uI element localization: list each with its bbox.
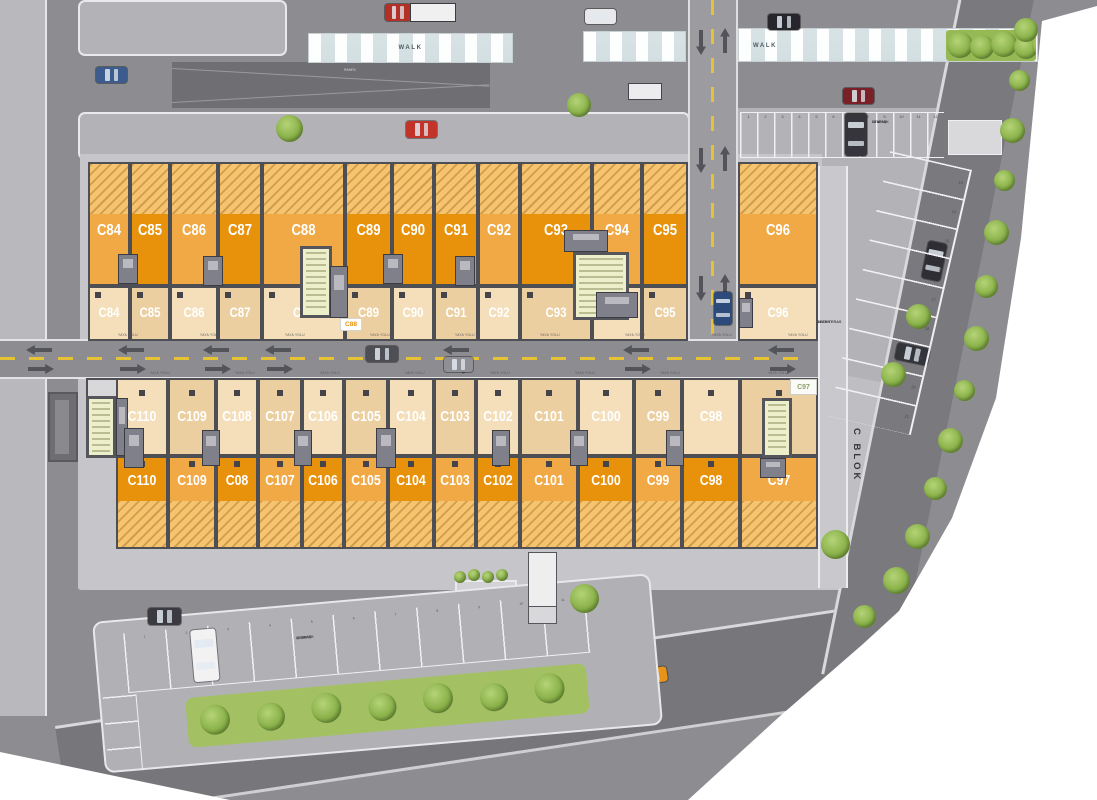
tree-icon bbox=[310, 692, 343, 725]
car-window bbox=[114, 69, 118, 81]
unit-label: C101 bbox=[527, 408, 571, 425]
car-window bbox=[194, 639, 214, 648]
bush-icon bbox=[454, 571, 466, 583]
car-window bbox=[105, 69, 110, 81]
unit-c95-lower[interactable]: C95 bbox=[642, 286, 688, 341]
car-icon bbox=[444, 357, 473, 372]
car-window bbox=[392, 6, 396, 19]
fixture-detail bbox=[460, 261, 471, 269]
stall-number: 5 bbox=[291, 618, 333, 626]
stall-number: 12 bbox=[927, 114, 944, 119]
unit-label: C90 bbox=[397, 304, 428, 320]
unit-c104-lower[interactable]: C104 bbox=[388, 456, 434, 549]
tree-icon bbox=[964, 326, 989, 351]
elevator-fixture bbox=[294, 430, 312, 466]
elevator-fixture bbox=[455, 256, 475, 286]
unit-backroom bbox=[347, 164, 390, 214]
elevator-fixture bbox=[666, 430, 684, 466]
pedestrian-path-label: YAYA YOLU bbox=[768, 371, 788, 375]
pedestrian-path-label: YAYA YOLU bbox=[625, 333, 645, 337]
unit-c108-upper[interactable]: C108 bbox=[216, 378, 258, 456]
fixture-detail bbox=[129, 435, 140, 446]
truck-icon bbox=[628, 83, 662, 100]
unit-backroom bbox=[684, 501, 738, 547]
unit-backroom bbox=[304, 501, 342, 547]
stall-number: 20 bbox=[901, 382, 916, 390]
car-icon bbox=[406, 121, 437, 138]
unit-label: C104 bbox=[394, 472, 428, 489]
unit-c109-lower[interactable]: C109 bbox=[168, 456, 216, 549]
elevator-fixture bbox=[383, 254, 403, 284]
unit-c106-lower[interactable]: C106 bbox=[302, 456, 344, 549]
stall-number: 1 bbox=[123, 633, 165, 641]
tree-icon bbox=[924, 477, 947, 500]
unit-backroom bbox=[220, 164, 260, 214]
pedestrian-path-label: YAYA YOLU bbox=[660, 371, 680, 375]
unit-label: C90 bbox=[397, 222, 428, 240]
tree-icon bbox=[984, 220, 1009, 245]
unit-backroom bbox=[436, 501, 474, 547]
pedestrian-path-label: YAYA YOLU bbox=[540, 333, 560, 337]
unit-label: C89 bbox=[351, 222, 386, 240]
tree-icon bbox=[1014, 18, 1038, 42]
unit-backroom bbox=[118, 501, 166, 547]
unit-c92[interactable]: C92 bbox=[478, 162, 520, 286]
corner-tag-c97: C97 bbox=[790, 379, 817, 395]
pedestrian-path-label: YAYA YOLU bbox=[200, 333, 220, 337]
unit-c87-lower[interactable]: C87 bbox=[218, 286, 262, 341]
unit-label: C99 bbox=[640, 408, 676, 425]
car-icon bbox=[845, 113, 867, 156]
fixture-detail bbox=[334, 275, 344, 290]
unit-backroom bbox=[436, 164, 476, 214]
elevator-fixture bbox=[376, 428, 396, 468]
unit-label: C92 bbox=[483, 304, 514, 320]
unit-label: C109 bbox=[174, 408, 210, 425]
pedestrian-path-label: YAYA YOLU bbox=[285, 333, 305, 337]
unit-backroom bbox=[522, 164, 590, 214]
car-window bbox=[415, 123, 420, 136]
unit-label: C100 bbox=[585, 472, 628, 489]
bush-icon bbox=[496, 569, 508, 581]
car-window bbox=[424, 123, 428, 136]
stall-number: 8 bbox=[416, 607, 458, 615]
unit-label: C105 bbox=[350, 408, 383, 425]
unit-backroom bbox=[478, 501, 518, 547]
unit-label: C92 bbox=[483, 222, 514, 240]
unit-backroom bbox=[580, 501, 632, 547]
elevator-fixture bbox=[492, 430, 510, 466]
stall-number: 1 bbox=[740, 114, 757, 119]
unit-backroom bbox=[394, 164, 432, 214]
unit-label: C102 bbox=[482, 472, 515, 489]
block-label: C BLOK bbox=[851, 428, 862, 482]
tree-icon bbox=[422, 682, 455, 715]
fixture-detail bbox=[206, 436, 216, 446]
unit-label: C110 bbox=[122, 472, 161, 489]
bush-icon bbox=[482, 571, 494, 583]
stairs bbox=[768, 404, 786, 452]
car-icon bbox=[96, 67, 127, 83]
stall-number: 9 bbox=[876, 114, 893, 119]
parking-pad bbox=[948, 120, 1002, 155]
walk-label: WALK bbox=[398, 45, 422, 51]
car-window bbox=[385, 348, 389, 360]
car-icon bbox=[843, 88, 874, 104]
car-window bbox=[787, 16, 791, 28]
sidewalk-island bbox=[78, 112, 690, 160]
unit-label: C85 bbox=[135, 222, 165, 240]
parking-stalls bbox=[103, 694, 143, 773]
car-window bbox=[848, 122, 865, 128]
car-window bbox=[603, 11, 607, 22]
elevator-fixture bbox=[203, 256, 223, 286]
road-center-line bbox=[0, 357, 812, 360]
fixture-detail bbox=[119, 407, 125, 424]
unit-backroom bbox=[740, 164, 816, 214]
tree-icon bbox=[256, 702, 286, 732]
unit-c08-lower[interactable]: C08 bbox=[216, 456, 258, 549]
truck-cab-icon bbox=[528, 606, 557, 624]
car-window bbox=[716, 299, 730, 304]
fixture-detail bbox=[766, 462, 780, 467]
stall-number: 13 bbox=[949, 177, 964, 185]
fixture-detail bbox=[298, 436, 308, 446]
car-icon bbox=[585, 9, 616, 24]
unit-backroom bbox=[260, 501, 300, 547]
ramp bbox=[172, 62, 490, 108]
unit-label: C85 bbox=[135, 304, 165, 320]
elevator-fixture bbox=[596, 292, 638, 318]
unit-backroom bbox=[218, 501, 256, 547]
fixture-detail bbox=[123, 259, 134, 267]
fixture-detail bbox=[742, 303, 749, 311]
unit-backroom bbox=[132, 164, 168, 214]
car-window bbox=[848, 141, 865, 146]
unit-label: C88 bbox=[271, 222, 336, 240]
stall-number: 5 bbox=[808, 114, 825, 119]
car-icon bbox=[148, 608, 181, 625]
unit-backroom bbox=[594, 164, 640, 214]
tree-icon bbox=[883, 567, 910, 594]
unit-c101-lower[interactable]: C101 bbox=[520, 456, 578, 549]
unit-label: C102 bbox=[482, 408, 515, 425]
sidewalk-island bbox=[78, 0, 287, 56]
car-window bbox=[777, 16, 782, 28]
stall-number: 17 bbox=[922, 294, 937, 302]
car-window bbox=[594, 11, 599, 22]
unit-backroom bbox=[480, 164, 518, 214]
van-icon bbox=[366, 346, 398, 362]
pedestrian-path-label: YAYA YOLU bbox=[405, 371, 425, 375]
tree-icon bbox=[938, 428, 963, 453]
tree-icon bbox=[533, 672, 566, 705]
elevator-fixture bbox=[570, 430, 588, 466]
stair-core bbox=[86, 396, 116, 458]
tree-icon bbox=[954, 380, 975, 401]
stall-number: 11 bbox=[910, 114, 927, 119]
unit-label: C103 bbox=[439, 408, 470, 425]
tree-icon bbox=[991, 31, 1017, 57]
unit-label: C104 bbox=[394, 408, 428, 425]
pedestrian-path-label: YAYA YOLU bbox=[455, 333, 475, 337]
stall-number: 7 bbox=[374, 611, 416, 619]
unit-c110-lower[interactable]: C110 bbox=[116, 456, 168, 549]
stall-number: 14 bbox=[942, 206, 957, 214]
stall-number: 4 bbox=[249, 622, 291, 630]
glass-walkway: WALK bbox=[308, 33, 513, 63]
unit-backroom bbox=[90, 164, 128, 214]
truck-trailer-icon bbox=[410, 3, 456, 22]
car-window bbox=[452, 359, 457, 370]
fixture-detail bbox=[573, 234, 598, 240]
unit-label: C101 bbox=[527, 472, 571, 489]
unit-c90-lower[interactable]: C90 bbox=[392, 286, 434, 341]
core-tag-c88: C88 bbox=[340, 318, 362, 331]
unit-c105-lower[interactable]: C105 bbox=[344, 456, 388, 549]
unit-label: C98 bbox=[689, 408, 733, 425]
unit-backroom bbox=[742, 501, 816, 547]
unit-label: C109 bbox=[174, 472, 210, 489]
car-window bbox=[852, 90, 857, 102]
tree-icon bbox=[1000, 118, 1025, 143]
stall-number: 9 bbox=[458, 603, 500, 611]
tree-icon bbox=[906, 304, 931, 329]
pedestrian-path-label: YAYA YOLU bbox=[150, 371, 170, 375]
elevator-fixture bbox=[760, 458, 786, 478]
unit-label: C91 bbox=[440, 222, 473, 240]
car-window bbox=[167, 610, 172, 623]
unit-c96[interactable]: C96 bbox=[738, 162, 818, 286]
fixture-detail bbox=[381, 435, 392, 446]
unit-label: C96 bbox=[747, 304, 809, 320]
stall-number: 6 bbox=[825, 114, 842, 119]
unit-backroom bbox=[522, 501, 576, 547]
unit-c103-upper[interactable]: C103 bbox=[434, 378, 476, 456]
unit-label: C86 bbox=[176, 222, 212, 240]
tree-icon bbox=[975, 275, 998, 298]
unit-label: C105 bbox=[350, 472, 383, 489]
car-icon bbox=[768, 14, 800, 30]
unit-backroom bbox=[644, 164, 686, 214]
unit-label: C107 bbox=[264, 472, 297, 489]
fixture-detail bbox=[496, 436, 506, 446]
car-icon bbox=[190, 628, 219, 682]
stall-number: 2 bbox=[757, 114, 774, 119]
car-window bbox=[861, 90, 865, 102]
unit-c100-lower[interactable]: C100 bbox=[578, 456, 634, 549]
unit-c87[interactable]: C87 bbox=[218, 162, 262, 286]
stall-number: 19 bbox=[908, 353, 923, 361]
stall-number: 10 bbox=[893, 114, 910, 119]
unit-backroom bbox=[390, 501, 432, 547]
road-center-line bbox=[711, 0, 714, 339]
tree-icon bbox=[567, 93, 591, 117]
unit-label: C86 bbox=[176, 304, 212, 320]
unit-label: C84 bbox=[93, 222, 124, 240]
elevator-fixture bbox=[330, 266, 348, 318]
unit-label: C106 bbox=[307, 408, 338, 425]
car-window bbox=[716, 313, 730, 317]
tree-icon bbox=[821, 530, 850, 559]
elevator-fixture bbox=[118, 254, 138, 284]
service-structure bbox=[48, 392, 78, 462]
unit-label: C103 bbox=[439, 472, 470, 489]
stall-number: 15 bbox=[935, 236, 950, 244]
car-window bbox=[157, 610, 162, 623]
unit-label: C107 bbox=[264, 408, 297, 425]
unit-label: C95 bbox=[648, 222, 682, 240]
unit-c95[interactable]: C95 bbox=[642, 162, 688, 286]
unit-c107-lower[interactable]: C107 bbox=[258, 456, 302, 549]
stall-number: 6 bbox=[333, 614, 375, 622]
pedestrian-path-label: YAYA YOLU bbox=[320, 371, 340, 375]
pedestrian-path-label: YAYA YOLU bbox=[788, 333, 808, 337]
tree-icon bbox=[853, 605, 876, 628]
stall-number: 21 bbox=[895, 411, 910, 419]
stall-number: 16 bbox=[928, 265, 943, 273]
unit-label: C110 bbox=[122, 408, 161, 425]
unit-backroom bbox=[172, 164, 216, 214]
stair-core bbox=[300, 246, 332, 318]
tree-icon bbox=[994, 170, 1015, 191]
unit-c98-lower[interactable]: C98 bbox=[682, 456, 740, 549]
unit-backroom bbox=[170, 501, 214, 547]
pedestrian-path-label: YAYA YOLU bbox=[490, 371, 510, 375]
glass-walkway bbox=[583, 31, 686, 62]
fixture-detail bbox=[208, 261, 219, 269]
pedestrian-path-label: YAYA YOLU bbox=[575, 371, 595, 375]
elevator-fixture bbox=[124, 428, 144, 468]
stall-number: 3 bbox=[774, 114, 791, 119]
car-icon bbox=[714, 292, 732, 325]
fixture-detail bbox=[605, 297, 629, 304]
unit-label: C08 bbox=[221, 472, 252, 489]
unit-label: C96 bbox=[747, 222, 809, 240]
unit-c99-lower[interactable]: C99 bbox=[634, 456, 682, 549]
car-window bbox=[196, 662, 215, 670]
bush-icon bbox=[468, 569, 480, 581]
walk-label: WALK bbox=[753, 43, 777, 49]
pedestrian-path-label: YAYA YOLU bbox=[118, 333, 138, 337]
truck-cab-icon bbox=[385, 4, 411, 21]
car-window bbox=[461, 359, 465, 370]
stall-number: 4 bbox=[791, 114, 808, 119]
car-window bbox=[375, 348, 380, 360]
fixture-detail bbox=[574, 436, 584, 446]
unit-label: C84 bbox=[93, 304, 124, 320]
unit-label: C87 bbox=[224, 304, 257, 320]
unit-c103-lower[interactable]: C103 bbox=[434, 456, 476, 549]
elevator-fixture bbox=[564, 230, 608, 252]
tree-icon bbox=[199, 703, 232, 736]
tree-icon bbox=[1009, 70, 1030, 91]
tree-icon bbox=[276, 115, 303, 142]
unit-label: C98 bbox=[689, 472, 733, 489]
unit-backroom bbox=[346, 501, 386, 547]
site-plan: RAMPA·············· ·············· WALK … bbox=[0, 0, 1097, 800]
unit-label: C100 bbox=[585, 408, 628, 425]
stairs bbox=[306, 252, 326, 312]
unit-c102-lower[interactable]: C102 bbox=[476, 456, 520, 549]
tree-icon bbox=[367, 692, 397, 722]
unit-backroom bbox=[264, 164, 343, 214]
unit-label: C106 bbox=[307, 472, 338, 489]
elevator-fixture bbox=[202, 430, 220, 466]
stairs bbox=[92, 402, 110, 452]
pedestrian-path-label: YAYA YOLU bbox=[235, 371, 255, 375]
pedestrian-path-label: YAYA YOLU bbox=[370, 333, 390, 337]
tree-icon bbox=[881, 362, 906, 387]
unit-label: C95 bbox=[648, 304, 682, 320]
unit-c92-lower[interactable]: C92 bbox=[478, 286, 520, 341]
car-window bbox=[400, 6, 404, 19]
fixture-detail bbox=[388, 259, 399, 267]
unit-label: C99 bbox=[640, 472, 676, 489]
elevator-fixture bbox=[739, 298, 753, 328]
tree-icon bbox=[905, 524, 930, 549]
unit-c98-upper[interactable]: C98 bbox=[682, 378, 740, 456]
tree-icon bbox=[570, 584, 599, 613]
tree-icon bbox=[479, 682, 509, 712]
unit-label: C87 bbox=[224, 222, 257, 240]
unit-label: C91 bbox=[440, 304, 473, 320]
unit-label: C108 bbox=[221, 408, 252, 425]
stair-core bbox=[762, 398, 792, 458]
fixture-detail bbox=[670, 436, 680, 446]
unit-backroom bbox=[636, 501, 680, 547]
pedestrian-path-label: YAYA YOLU bbox=[712, 333, 732, 337]
